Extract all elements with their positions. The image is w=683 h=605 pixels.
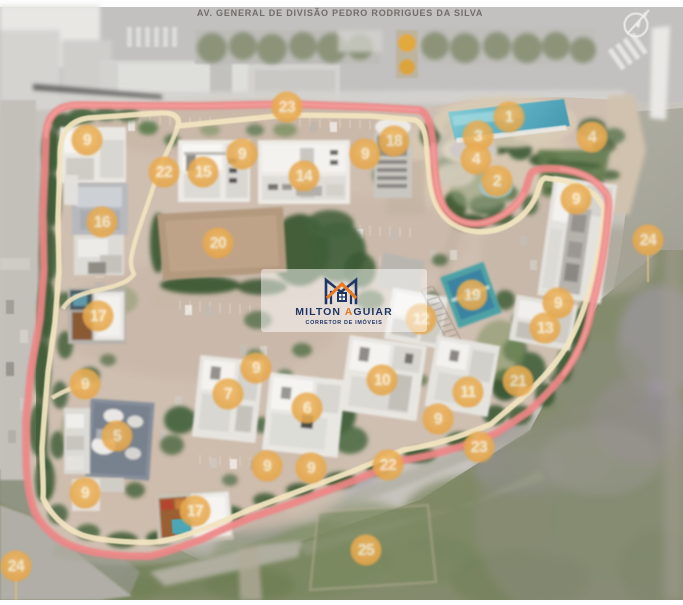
svg-text:9: 9 xyxy=(83,132,92,149)
svg-text:9: 9 xyxy=(572,191,581,208)
svg-text:22: 22 xyxy=(380,457,396,474)
svg-text:9: 9 xyxy=(263,458,272,475)
svg-text:4: 4 xyxy=(588,129,597,146)
svg-text:9: 9 xyxy=(238,146,247,163)
svg-text:7: 7 xyxy=(224,386,232,403)
svg-text:2: 2 xyxy=(493,173,501,190)
svg-text:9: 9 xyxy=(81,485,90,502)
svg-text:9: 9 xyxy=(434,411,443,428)
svg-text:25: 25 xyxy=(358,542,375,559)
svg-text:19: 19 xyxy=(464,287,481,304)
svg-text:15: 15 xyxy=(195,164,212,181)
svg-text:20: 20 xyxy=(210,235,226,252)
svg-text:9: 9 xyxy=(252,360,261,377)
svg-text:9: 9 xyxy=(81,376,90,393)
svg-text:14: 14 xyxy=(296,168,313,185)
svg-text:AV. GENERAL DE DIVISÃO PEDRO R: AV. GENERAL DE DIVISÃO PEDRO RODRIGUES D… xyxy=(197,8,483,18)
svg-text:9: 9 xyxy=(307,460,316,477)
svg-text:10: 10 xyxy=(374,372,390,389)
svg-text:CORRETOR DE IMÓVEIS: CORRETOR DE IMÓVEIS xyxy=(306,318,383,326)
svg-text:17: 17 xyxy=(187,503,203,520)
svg-text:5: 5 xyxy=(113,428,122,445)
svg-text:18: 18 xyxy=(386,133,403,150)
svg-text:MILTON AGUIAR: MILTON AGUIAR xyxy=(295,306,393,318)
svg-text:13: 13 xyxy=(537,320,554,337)
svg-text:11: 11 xyxy=(460,384,476,401)
svg-text:3: 3 xyxy=(474,128,483,145)
svg-text:9: 9 xyxy=(361,146,370,163)
svg-text:9: 9 xyxy=(554,295,563,312)
svg-text:1: 1 xyxy=(505,109,514,126)
svg-text:6: 6 xyxy=(303,400,312,417)
svg-text:4: 4 xyxy=(472,151,481,168)
svg-text:23: 23 xyxy=(471,439,488,456)
svg-text:16: 16 xyxy=(94,214,111,231)
svg-text:21: 21 xyxy=(510,373,527,390)
svg-text:17: 17 xyxy=(90,308,106,325)
svg-text:24: 24 xyxy=(8,558,25,575)
svg-text:24: 24 xyxy=(640,232,657,249)
svg-text:22: 22 xyxy=(156,164,172,181)
svg-text:23: 23 xyxy=(279,99,296,116)
